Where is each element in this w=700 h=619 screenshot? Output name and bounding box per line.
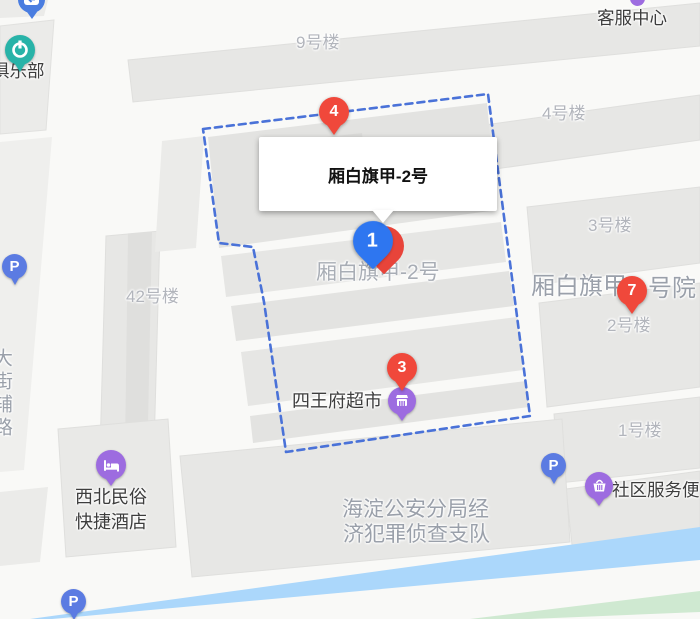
marker-7[interactable]: 7	[617, 276, 647, 314]
label-courtyard-left: 厢白旗甲	[531, 273, 627, 301]
metro-station-pin[interactable]	[5, 35, 35, 72]
label-supermarket[interactable]: 四王府超市	[292, 391, 382, 412]
label-building-1: 1号楼	[618, 421, 661, 441]
parking-icon: P	[541, 453, 566, 478]
marker-4-tail	[327, 125, 341, 135]
label-customer-service[interactable]: 客服中心	[597, 8, 667, 28]
label-community[interactable]: 社区服务便	[612, 480, 700, 500]
parking-icon: P	[2, 254, 27, 279]
map-view[interactable]: 9号楼 4号楼 3号楼 2号楼 1号楼 42号楼 厢白旗甲-2号 厢白旗甲 号院…	[0, 0, 700, 619]
marker-3[interactable]: 3	[387, 353, 417, 391]
label-hotel-line1[interactable]: 西北民俗	[75, 487, 147, 508]
transit-entrance-pin[interactable]	[18, 0, 45, 19]
hotel-pin[interactable]	[96, 450, 126, 486]
community-service-pin[interactable]	[585, 472, 613, 506]
label-street-vertical: 大街辅路	[0, 348, 12, 440]
marker-1-number: 1	[367, 230, 378, 253]
label-police-line2: 济犯罪侦查支队	[343, 523, 490, 547]
parking-pin-left[interactable]: P	[2, 254, 27, 285]
info-popup[interactable]: 厢白旗甲-2号	[259, 137, 497, 211]
parking-pin-bottom[interactable]: P	[61, 589, 86, 619]
info-popup-pointer	[372, 210, 394, 223]
label-building-2: 2号楼	[607, 316, 650, 336]
supermarket-pin[interactable]	[388, 387, 416, 421]
block-left-mid	[155, 136, 204, 252]
label-building-4: 4号楼	[542, 104, 585, 124]
marker-4-number: 4	[330, 103, 339, 121]
parking-icon: P	[61, 589, 86, 614]
green-area	[470, 591, 700, 619]
store-icon	[388, 387, 416, 415]
arrow-left-icon	[24, 0, 39, 5]
marker-7-tail	[625, 304, 639, 314]
basket-icon	[585, 472, 613, 500]
label-building-9: 9号楼	[296, 33, 339, 53]
label-courtyard-right: 号院	[648, 275, 696, 303]
marker-7-number: 7	[628, 282, 637, 300]
marker-3-number: 3	[398, 359, 407, 377]
marker-3-tail	[395, 381, 409, 391]
metro-icon	[5, 35, 35, 65]
label-building-42: 42号楼	[126, 287, 179, 307]
label-building-3: 3号楼	[588, 216, 631, 236]
marker-4[interactable]: 4	[319, 97, 349, 135]
parking-pin-right[interactable]: P	[541, 453, 566, 484]
info-popup-title: 厢白旗甲-2号	[328, 162, 428, 187]
bed-icon	[96, 450, 126, 480]
building-3-shape	[527, 187, 700, 285]
block-bottom-left	[0, 487, 48, 566]
label-police-line1: 海淀公安分局经	[342, 498, 489, 522]
label-hotel-line2[interactable]: 快捷酒店	[75, 512, 147, 533]
